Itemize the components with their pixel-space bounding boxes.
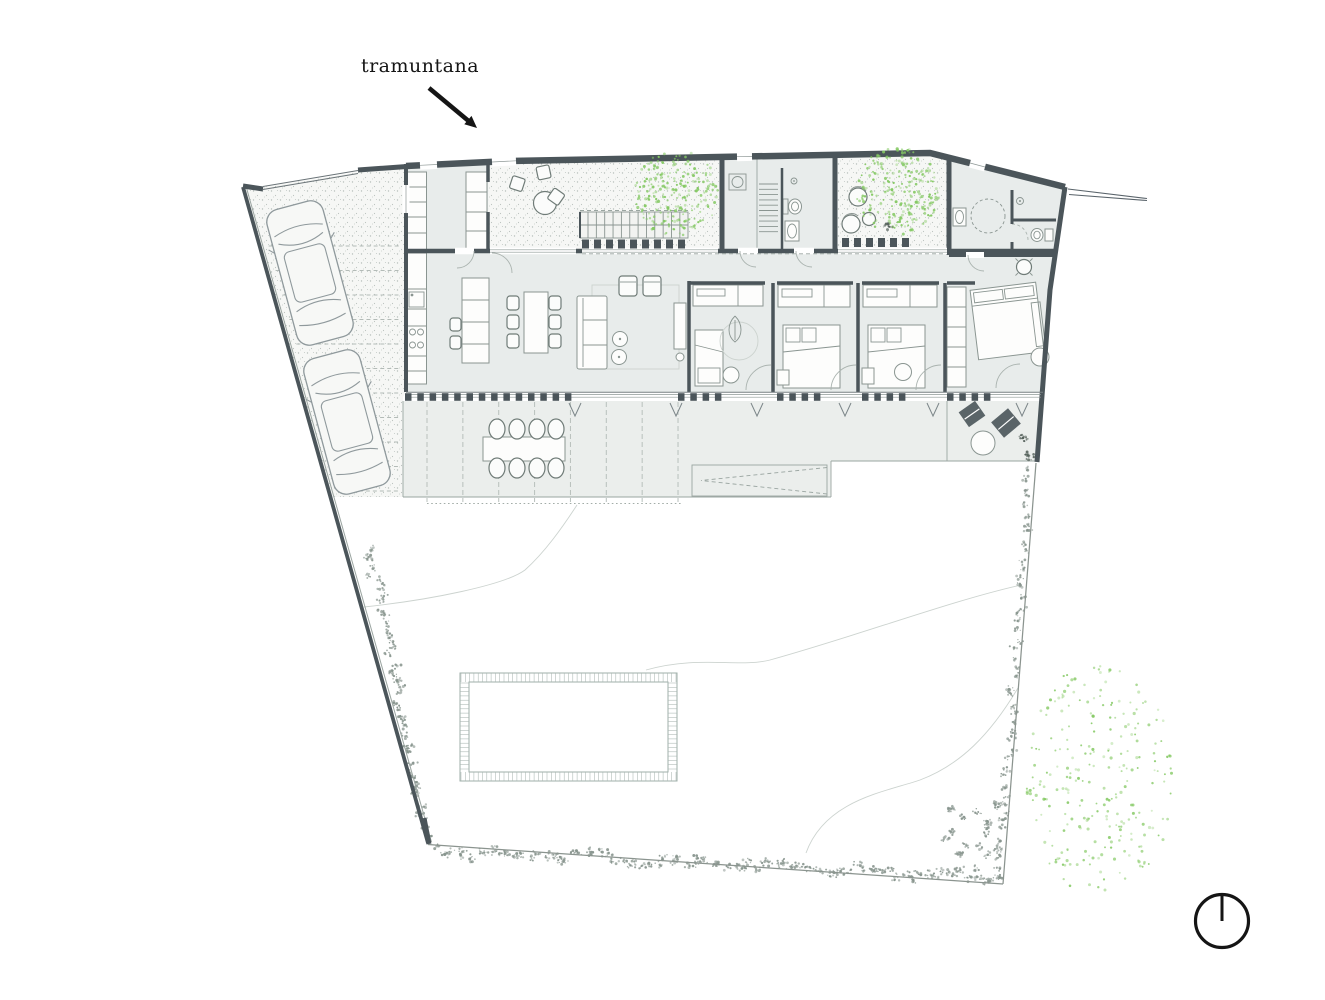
wind-arrow-icon bbox=[429, 88, 477, 128]
site-plan-drawing: tramuntana bbox=[0, 0, 1325, 1000]
floor-plan-figure: tramuntana bbox=[0, 0, 1325, 1000]
dining-area bbox=[507, 292, 561, 353]
wind-annotation: tramuntana bbox=[361, 55, 479, 128]
stairs bbox=[580, 211, 688, 239]
swimming-pool bbox=[460, 673, 677, 781]
wind-label: tramuntana bbox=[361, 55, 479, 77]
north-indicator-icon bbox=[1196, 895, 1249, 948]
neighbour-property-line bbox=[1068, 189, 1147, 201]
bedroom-2 bbox=[777, 285, 850, 388]
outdoor-dining bbox=[483, 419, 565, 478]
